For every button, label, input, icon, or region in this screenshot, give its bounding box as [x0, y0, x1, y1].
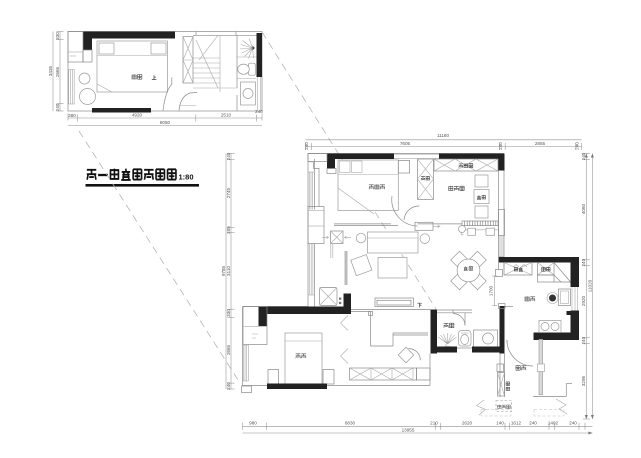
- svg-text:330: 330: [55, 32, 60, 40]
- svg-text:210: 210: [430, 421, 438, 426]
- svg-text:240: 240: [226, 382, 231, 390]
- svg-text:11020: 11020: [587, 279, 592, 292]
- svg-text:240: 240: [581, 152, 586, 160]
- svg-text:240: 240: [529, 421, 537, 426]
- svg-text:240: 240: [55, 103, 60, 111]
- svg-text:980: 980: [249, 421, 257, 426]
- svg-text:7605: 7605: [400, 141, 411, 146]
- svg-text:2620: 2620: [462, 421, 473, 426]
- svg-text:3295: 3295: [581, 375, 586, 386]
- svg-text:2510: 2510: [221, 113, 232, 118]
- svg-text:1700: 1700: [489, 285, 494, 296]
- svg-text:240: 240: [255, 109, 263, 114]
- svg-text:2665: 2665: [55, 66, 60, 77]
- svg-text:6830: 6830: [345, 421, 356, 426]
- svg-text:240: 240: [581, 258, 586, 266]
- svg-text:240: 240: [226, 152, 231, 160]
- svg-text:2665: 2665: [226, 344, 231, 355]
- svg-text:240: 240: [581, 336, 586, 344]
- svg-text:8050: 8050: [160, 120, 171, 125]
- svg-text:11180: 11180: [437, 133, 450, 138]
- svg-text:13955: 13955: [402, 428, 415, 433]
- svg-text:240: 240: [498, 142, 503, 150]
- svg-text:330: 330: [226, 309, 231, 317]
- svg-text:140: 140: [496, 421, 504, 426]
- svg-text:9785: 9785: [221, 265, 226, 276]
- svg-text:240: 240: [304, 142, 309, 150]
- svg-text:1612: 1612: [511, 421, 522, 426]
- svg-text:3110: 3110: [226, 266, 231, 276]
- svg-text:2920: 2920: [581, 295, 586, 306]
- svg-text:205: 205: [226, 226, 231, 234]
- svg-text:4920: 4920: [132, 113, 143, 118]
- svg-text:240: 240: [575, 142, 580, 150]
- svg-text:2745: 2745: [226, 187, 231, 198]
- svg-text:380: 380: [68, 113, 76, 118]
- svg-text:3435: 3435: [48, 65, 53, 76]
- svg-text:4060: 4060: [581, 203, 586, 214]
- svg-text:1:80: 1:80: [179, 173, 194, 182]
- svg-text:1402: 1402: [548, 421, 559, 426]
- svg-text:2855: 2855: [535, 141, 546, 146]
- svg-text:240: 240: [569, 421, 577, 426]
